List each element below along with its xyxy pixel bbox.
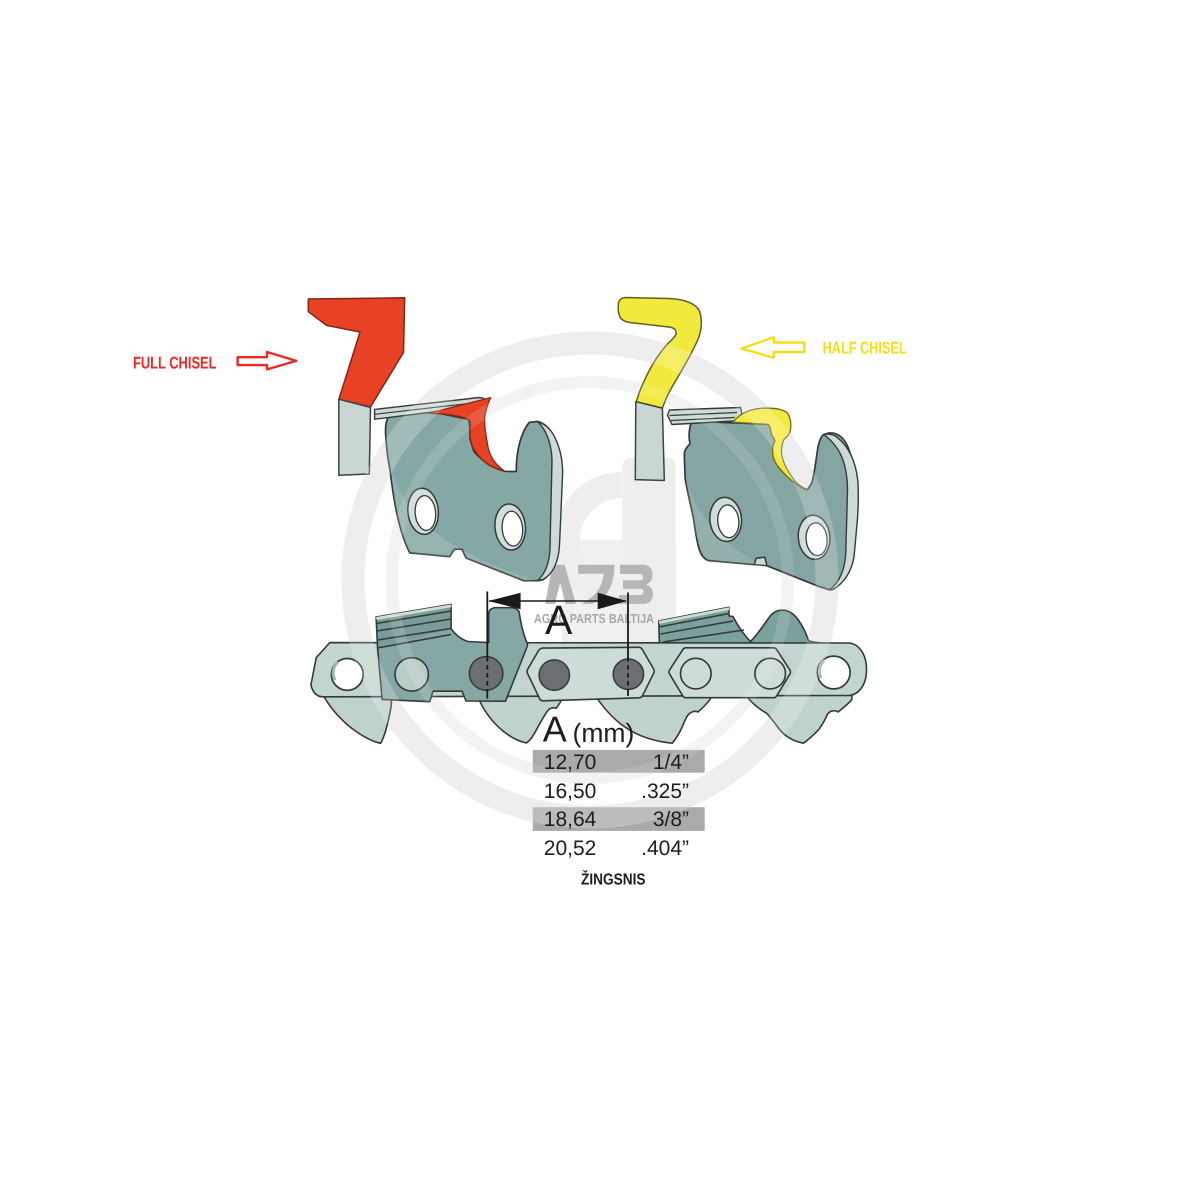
svg-text:A: A [543, 709, 567, 750]
svg-text:3/8”: 3/8” [653, 808, 689, 831]
svg-text:ŽINGSNIS: ŽINGSNIS [581, 870, 646, 889]
svg-text:20,52: 20,52 [544, 837, 597, 860]
svg-text:HALF CHISEL: HALF CHISEL [823, 338, 907, 357]
svg-text:.404”: .404” [641, 837, 689, 860]
svg-text:1/4”: 1/4” [653, 751, 689, 774]
svg-text:16,50: 16,50 [544, 780, 597, 803]
svg-text:A: A [545, 597, 573, 643]
svg-text:18,64: 18,64 [544, 808, 597, 831]
svg-text:(mm): (mm) [573, 718, 635, 748]
svg-text:12,70: 12,70 [544, 751, 597, 774]
svg-text:.325”: .325” [641, 780, 689, 803]
svg-text:FULL CHISEL: FULL CHISEL [133, 354, 217, 373]
